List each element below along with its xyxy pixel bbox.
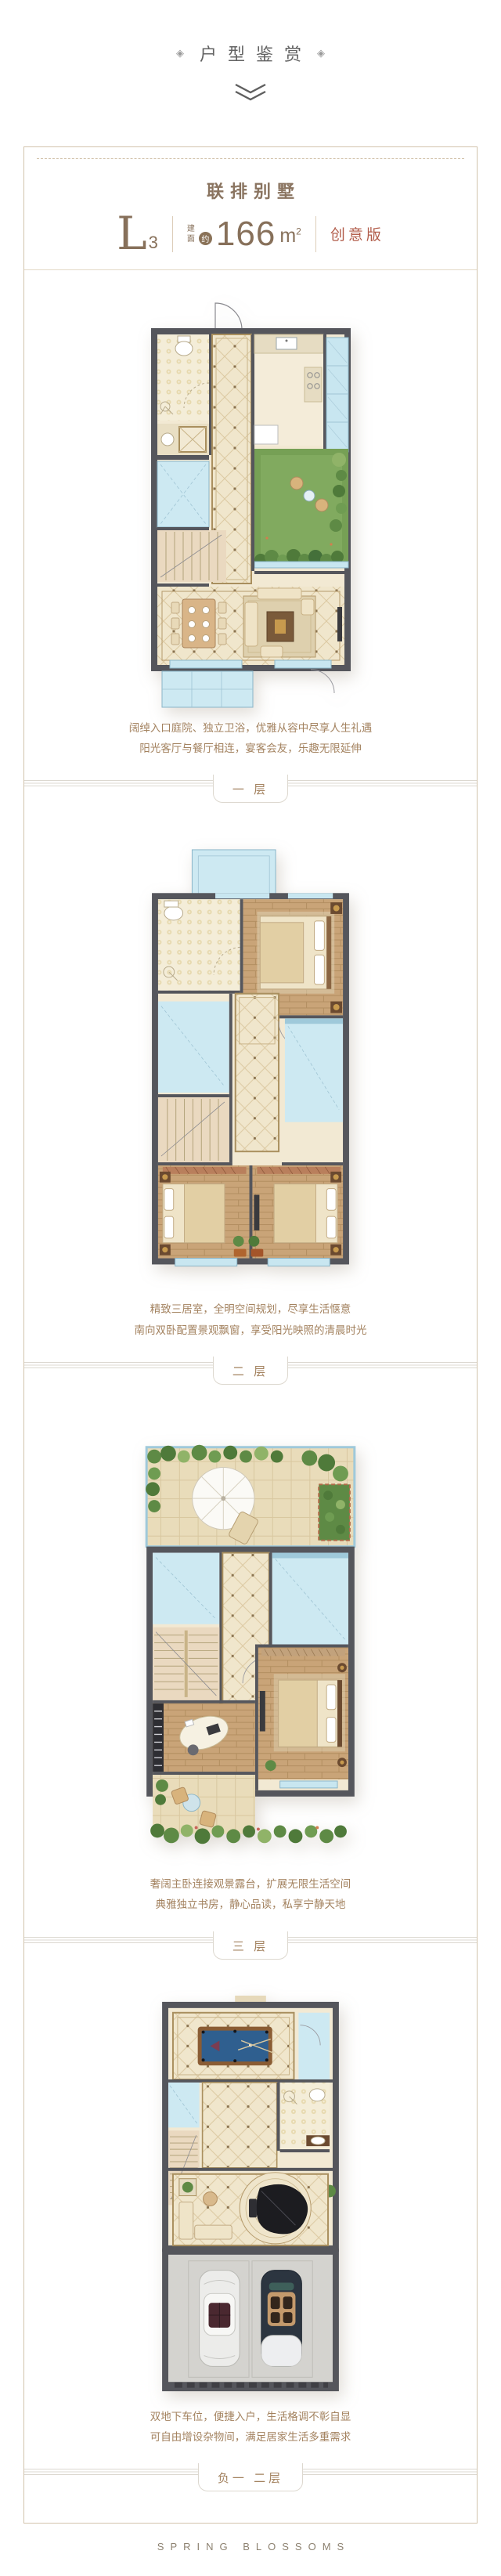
window (268, 1259, 330, 1266)
living-dining-room (157, 587, 344, 665)
bathroom (157, 334, 209, 421)
bay-windows (326, 338, 348, 452)
floor-3-description: 奢阔主卧连接观景露台，扩展无限生活空间 典雅独立书房，静心品读，私享宁静天地 (24, 1874, 477, 1916)
decorative-dashed-line (37, 158, 464, 159)
divider-lines (288, 1937, 477, 1943)
floor-plan-3 (24, 1424, 477, 1866)
terrace-east (272, 1553, 348, 1645)
floor-1-divider: 一 层 (24, 775, 477, 803)
grand-piano (240, 2172, 311, 2243)
roof-terrace (146, 1445, 355, 1547)
door-swing (311, 670, 334, 693)
floor-2-description: 精致三居室，全明空间规划，尽享生活惬意 南向双卧配置景观飘窗，享受阳光映照的清晨… (24, 1299, 477, 1341)
floor-plan-3-svg (141, 1424, 360, 1866)
page-title: 户型鉴赏 (200, 41, 312, 66)
floor-1-label: 一 层 (213, 775, 288, 803)
bathroom (280, 2083, 330, 2149)
cushion (234, 1249, 247, 1257)
divider-lines (24, 2469, 198, 2475)
entry-vestibule (298, 2012, 330, 2079)
area-value: 166 (216, 215, 276, 254)
kitchen (254, 334, 323, 446)
terrace-west (153, 1553, 219, 1624)
window (275, 660, 331, 668)
family-room (173, 2172, 328, 2245)
area-label: 建 面 (187, 224, 195, 244)
stairs (158, 1097, 229, 1162)
garden-courtyard (254, 449, 348, 568)
floor-1-description: 阔绰入口庭院、独立卫浴，优雅从容中尽享人生礼遇 阳光客厅与餐厅相连，宴客会友，乐… (24, 718, 477, 760)
lower-terrace (153, 1775, 255, 1834)
floor-basement-label: 负一 二层 (198, 2463, 303, 2491)
tv (254, 1195, 259, 1230)
floor-basement-divider: 负一 二层 (24, 2463, 477, 2491)
cushion (250, 1249, 263, 1257)
floor-plan-2 (24, 847, 477, 1292)
edition-tag: 创意版 (330, 223, 384, 244)
vanity-laundry (157, 424, 209, 455)
header-separator-line (24, 269, 477, 270)
floor-3-label: 三 层 (213, 1931, 288, 1960)
plant (233, 1236, 244, 1247)
garage (162, 2248, 339, 2390)
content-frame: 联排别墅 L 3 建 面 约 166 m2 创意版 (23, 146, 478, 2524)
building-type-title: 联排别墅 (24, 178, 483, 203)
unit-model-number: 3 (149, 233, 158, 253)
floor-plan-1-svg (143, 295, 359, 710)
plant (265, 1760, 276, 1771)
terrace-east (285, 1019, 343, 1122)
billiards-room (173, 2012, 294, 2079)
floor-2-divider: 二 层 (24, 1357, 477, 1385)
car-white (200, 2270, 240, 2366)
floor-plan-1 (24, 295, 477, 710)
diamond-ornament-icon: ◈ (176, 47, 184, 60)
sofa-set (243, 588, 315, 657)
divider-lines (288, 780, 477, 786)
balcony (192, 850, 276, 894)
diamond-ornament-icon: ◈ (317, 47, 325, 60)
unit-model-letter: L (117, 215, 147, 253)
window (280, 1781, 337, 1788)
lightwell (157, 461, 209, 527)
divider-lines (303, 2469, 477, 2475)
floor-plan-basement (24, 1996, 477, 2399)
brand-name: SPRING BLOSSOMS (157, 2541, 350, 2553)
vertical-divider (172, 216, 173, 252)
floor-plan-2-svg (144, 847, 357, 1292)
vertical-divider (315, 216, 316, 252)
divider-lines (24, 1937, 213, 1943)
floor-plan-basement-svg (157, 1996, 344, 2399)
unit-header: L 3 建 面 约 166 m2 创意版 (24, 215, 477, 254)
window (288, 894, 333, 899)
divider-lines (24, 780, 213, 786)
storage-room (168, 2083, 200, 2127)
study (153, 1703, 255, 1772)
stairs (157, 530, 226, 582)
floor-basement-description: 双地下车位，便捷入户，生活格调不彰自显 可自由增设杂物间，满足居家生活多重需求 (24, 2407, 477, 2448)
terrace-west (158, 1002, 229, 1093)
double-chevron-down-icon (0, 83, 501, 106)
divider-lines (288, 1362, 477, 1368)
window (215, 894, 269, 899)
stairs (153, 1628, 219, 1700)
tv (337, 607, 342, 641)
bay-window-terrace (162, 671, 253, 707)
floor-3-divider: 三 层 (24, 1931, 477, 1960)
page-header: ◈ 户型鉴赏 ◈ (0, 0, 501, 106)
window (175, 1259, 237, 1266)
plant (249, 1236, 260, 1247)
brand-footer: SPRING BLOSSOMS (0, 2541, 501, 2576)
divider-lines (24, 1362, 213, 1368)
approx-badge: 约 (199, 232, 212, 245)
unit-model: L 3 (117, 215, 158, 253)
car-convertible (261, 2270, 302, 2366)
floor-2-label: 二 层 (213, 1357, 288, 1385)
window (170, 660, 242, 668)
unit-area: 建 面 约 166 m2 (187, 215, 301, 254)
hallway (203, 2083, 277, 2168)
dining-table (171, 599, 226, 648)
area-unit: m2 (279, 225, 301, 247)
bathroom (158, 900, 240, 992)
tv (260, 1691, 265, 1732)
bedroom-southeast (252, 1165, 343, 1259)
master-bedroom (258, 1647, 348, 1779)
entry-door-swing (215, 303, 242, 330)
